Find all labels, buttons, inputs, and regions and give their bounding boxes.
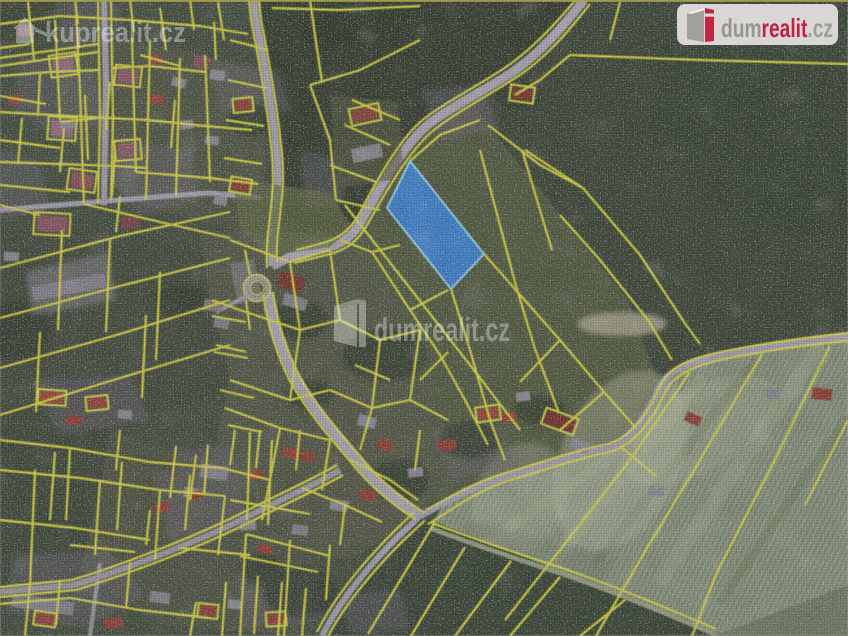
svg-text:kuprealit.cz: kuprealit.cz	[45, 17, 186, 49]
svg-text:dumrealit.cz: dumrealit.cz	[721, 13, 833, 43]
svg-text:dumrealit.cz: dumrealit.cz	[374, 311, 510, 348]
